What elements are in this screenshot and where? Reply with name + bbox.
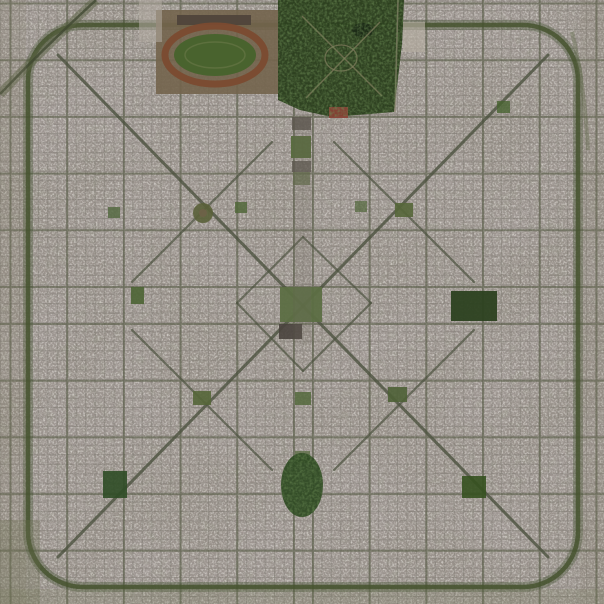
plaza-axis-south	[295, 392, 311, 405]
rural-corner-sw	[0, 520, 40, 604]
plaza-left-small	[108, 207, 120, 218]
plaza-small-nw	[235, 202, 247, 213]
outside-ring-left	[0, 0, 26, 604]
satellite-render	[0, 0, 604, 604]
racecourse-infield	[174, 34, 256, 76]
plaza-ne	[395, 203, 413, 217]
plaza-nw-circular-center	[199, 209, 207, 217]
saavedra-canopy-texture	[281, 453, 323, 517]
outside-ring-right	[580, 0, 604, 604]
plaza-se	[388, 387, 407, 402]
forest-canopy-texture	[278, 0, 404, 117]
outside-ring-bottom	[0, 589, 604, 604]
plaza-bottom-left	[103, 471, 127, 498]
white-building-cluster	[403, 22, 425, 52]
plaza-mid-left	[131, 287, 144, 304]
plaza-bottom-right	[462, 476, 486, 498]
park-right-dark	[451, 291, 497, 321]
plaza-sw	[193, 391, 211, 405]
plaza-small-ne	[355, 201, 367, 212]
satellite-image	[0, 0, 604, 604]
plaza-right-small	[497, 101, 510, 113]
civic-axis-shade	[293, 115, 311, 345]
industrial-white-left	[139, 0, 162, 42]
